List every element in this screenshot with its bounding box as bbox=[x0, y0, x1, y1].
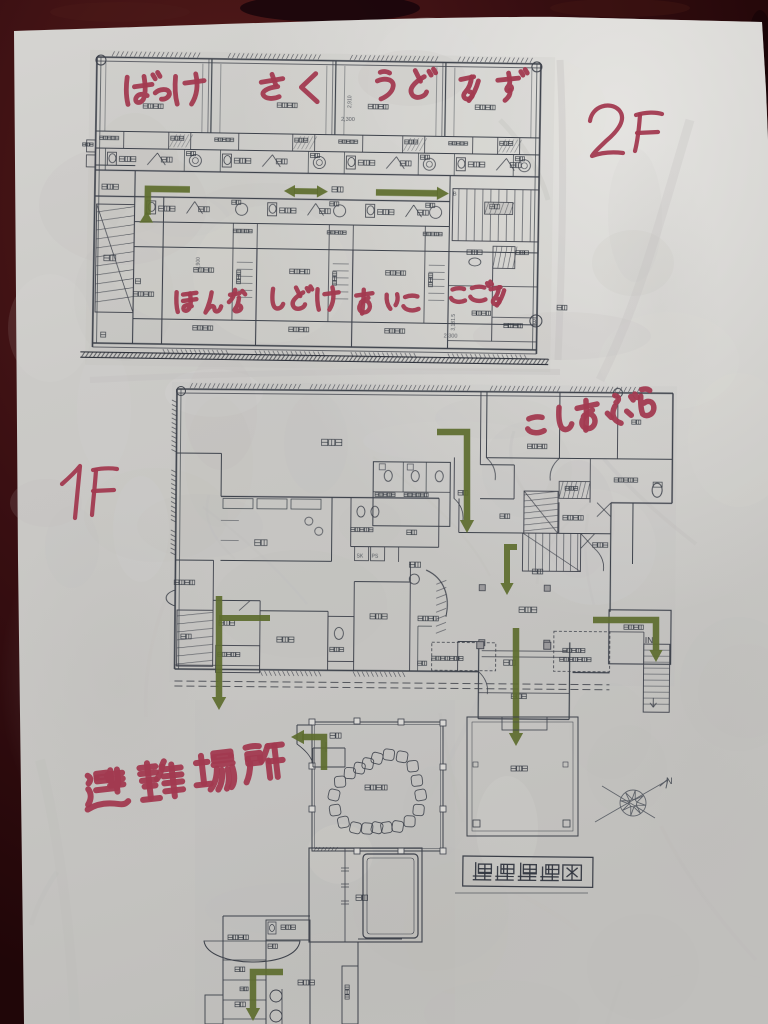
svg-text:PS: PS bbox=[372, 554, 379, 560]
svg-text:B: B bbox=[532, 320, 536, 326]
svg-text:3,181.5: 3,181.5 bbox=[451, 314, 457, 331]
svg-text:SK: SK bbox=[357, 554, 364, 560]
svg-text:2,900: 2,900 bbox=[196, 257, 202, 270]
svg-text:2,300: 2,300 bbox=[444, 333, 458, 339]
svg-text:2,300: 2,300 bbox=[341, 117, 355, 123]
svg-text:B: B bbox=[453, 192, 457, 198]
svg-text:2,910: 2,910 bbox=[347, 95, 353, 108]
